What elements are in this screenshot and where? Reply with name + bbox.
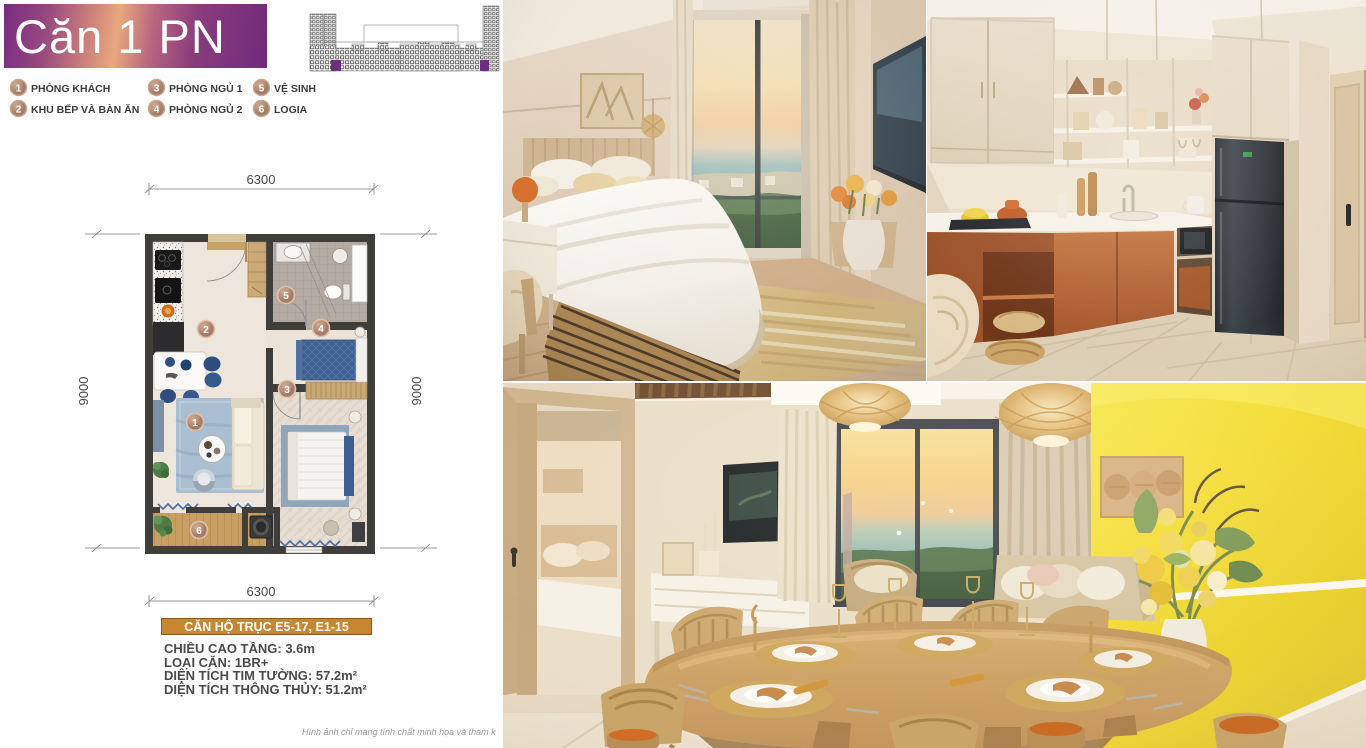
svg-text:6300: 6300 [247, 584, 276, 599]
svg-text:1: 1 [192, 418, 198, 429]
svg-text:2: 2 [16, 104, 22, 115]
svg-text:5: 5 [259, 83, 265, 94]
svg-text:LOGIA: LOGIA [274, 104, 308, 116]
svg-text:1: 1 [16, 83, 22, 94]
svg-text:VỆ SINH: VỆ SINH [274, 82, 316, 95]
svg-text:PHÒNG NGỦ 2: PHÒNG NGỦ 2 [169, 103, 243, 116]
svg-text:6300: 6300 [247, 172, 276, 187]
svg-text:3: 3 [284, 385, 290, 396]
svg-text:PHÒNG KHÁCH: PHÒNG KHÁCH [31, 82, 110, 95]
svg-text:2: 2 [203, 325, 209, 336]
svg-text:3: 3 [154, 83, 160, 94]
svg-text:5: 5 [283, 291, 289, 302]
svg-text:4: 4 [154, 104, 160, 115]
svg-text:6: 6 [259, 104, 265, 115]
svg-text:9000: 9000 [76, 377, 91, 406]
svg-text:KHU BẾP VÀ BÀN ĂN: KHU BẾP VÀ BÀN ĂN [31, 103, 139, 116]
svg-text:PHÒNG NGỦ 1: PHÒNG NGỦ 1 [169, 82, 243, 95]
svg-text:9000: 9000 [409, 377, 424, 406]
svg-text:6: 6 [196, 526, 202, 537]
svg-text:4: 4 [318, 324, 324, 335]
